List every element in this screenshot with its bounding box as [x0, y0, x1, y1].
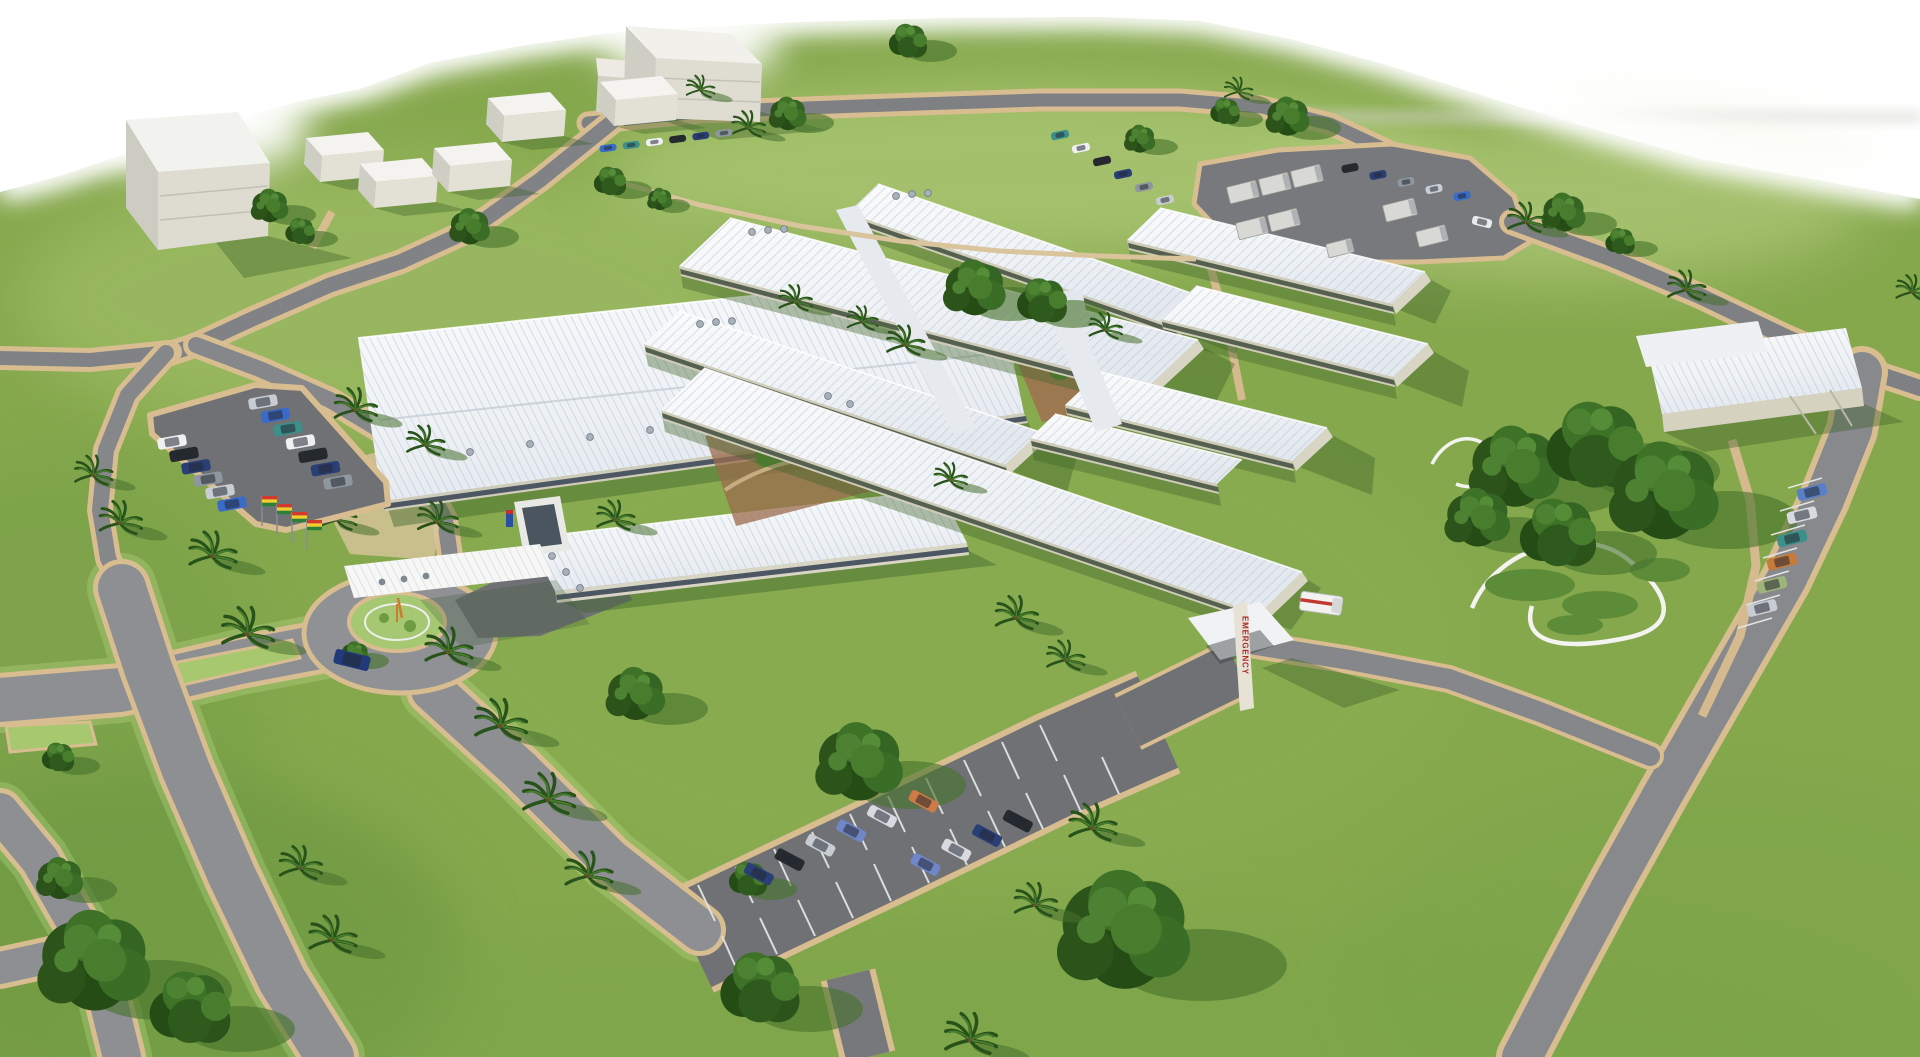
svg-text:EMERGENCY: EMERGENCY — [1241, 616, 1250, 675]
